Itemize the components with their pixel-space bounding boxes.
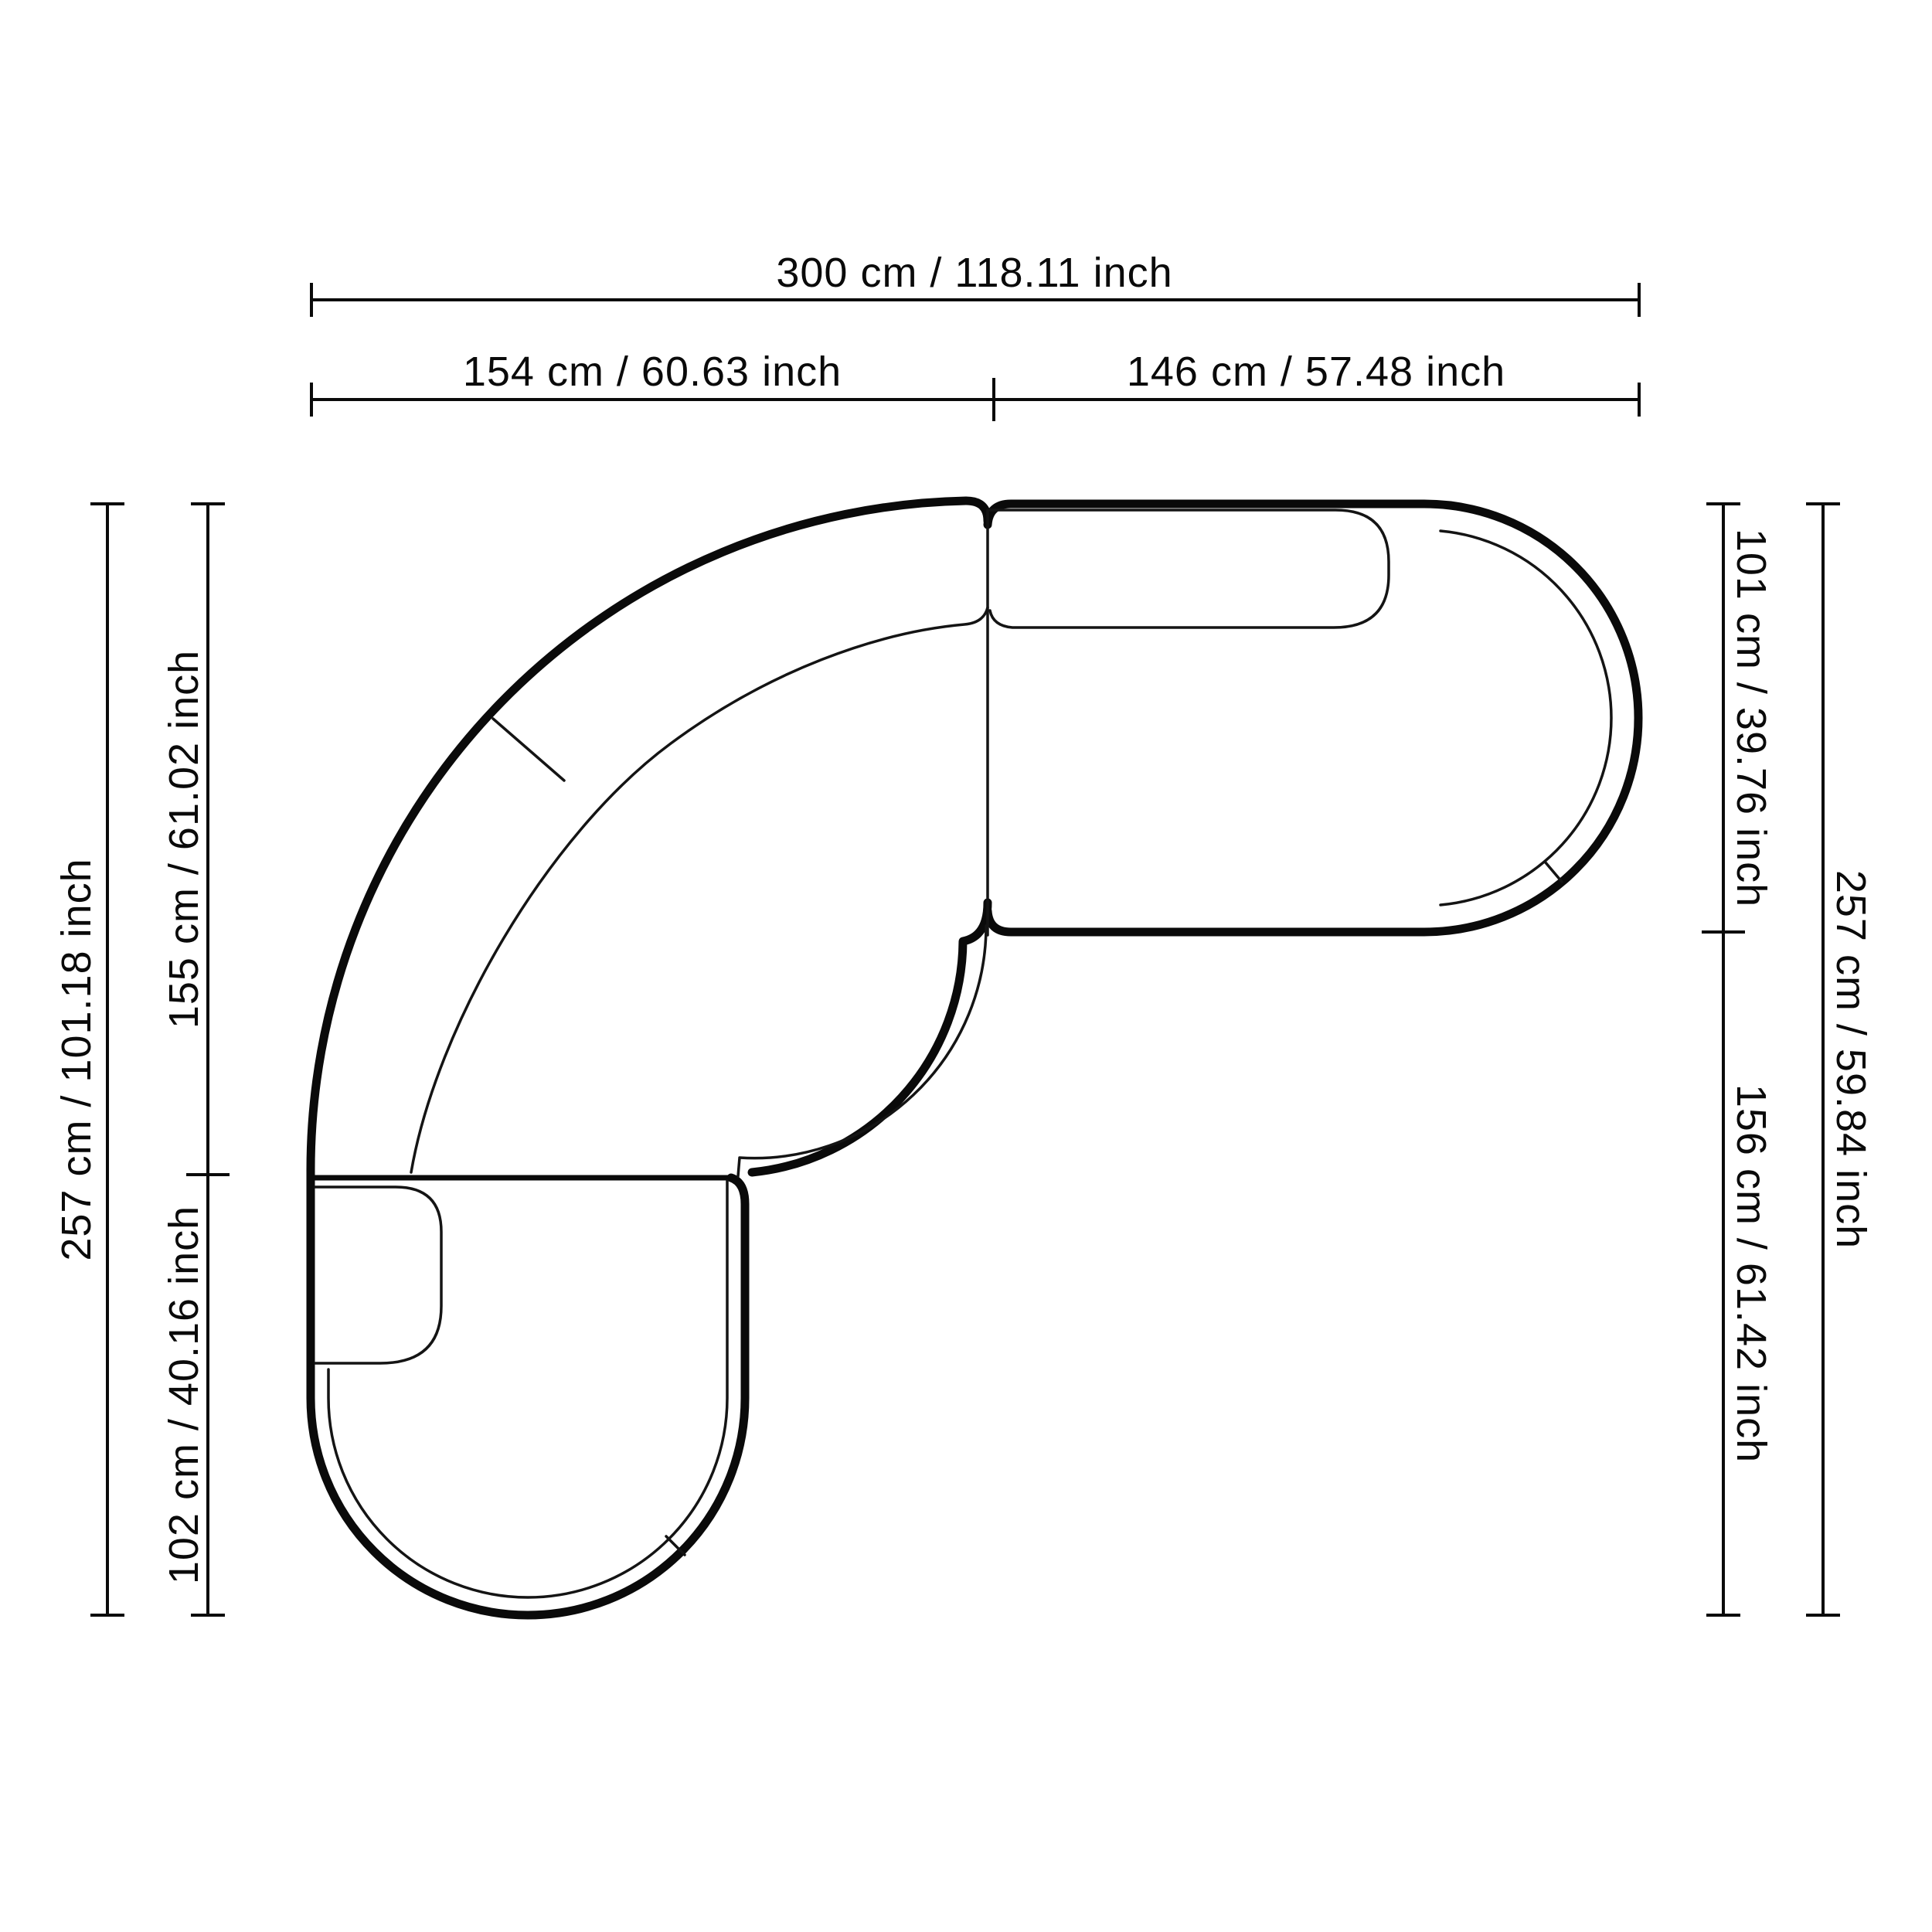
dim-right-segments: 101 cm / 39.76 inch 156 cm / 61.42 inch (1702, 504, 1774, 1615)
dim-top-segments: 154 cm / 60.63 inch 146 cm / 57.48 inch (311, 349, 1639, 421)
diagram-svg: 300 cm / 118.11 inch 154 cm / 60.63 inch… (0, 0, 1932, 1932)
corner-module-fill (311, 504, 988, 1174)
dim-right-total: 257 cm / 59.84 inch (1806, 504, 1874, 1615)
dim-top-total-label: 300 cm / 118.11 inch (776, 250, 1172, 296)
right-module-fill (988, 504, 1638, 932)
sofa-outline (311, 501, 1638, 1615)
dim-right-lower-segment-label: 156 cm / 61.42 inch (1728, 1084, 1774, 1463)
dim-left-total: 257 cm / 101.18 inch (53, 504, 124, 1615)
dim-left-segments: 155 cm / 61.02 inch 102 cm / 40.16 inch (161, 504, 230, 1615)
dim-left-total-label: 257 cm / 101.18 inch (53, 858, 100, 1260)
dim-top-right-segment-label: 146 cm / 57.48 inch (1127, 349, 1505, 395)
dim-left-lower-segment-label: 102 cm / 40.16 inch (161, 1206, 207, 1584)
dim-right-total-label: 257 cm / 59.84 inch (1828, 870, 1874, 1249)
dim-left-upper-segment-label: 155 cm / 61.02 inch (161, 650, 207, 1029)
sofa-dimension-diagram: 300 cm / 118.11 inch 154 cm / 60.63 inch… (0, 0, 1932, 1932)
dim-top-left-segment-label: 154 cm / 60.63 inch (463, 349, 842, 395)
dim-right-upper-segment-label: 101 cm / 39.76 inch (1728, 529, 1774, 907)
dim-top-total: 300 cm / 118.11 inch (311, 250, 1639, 317)
